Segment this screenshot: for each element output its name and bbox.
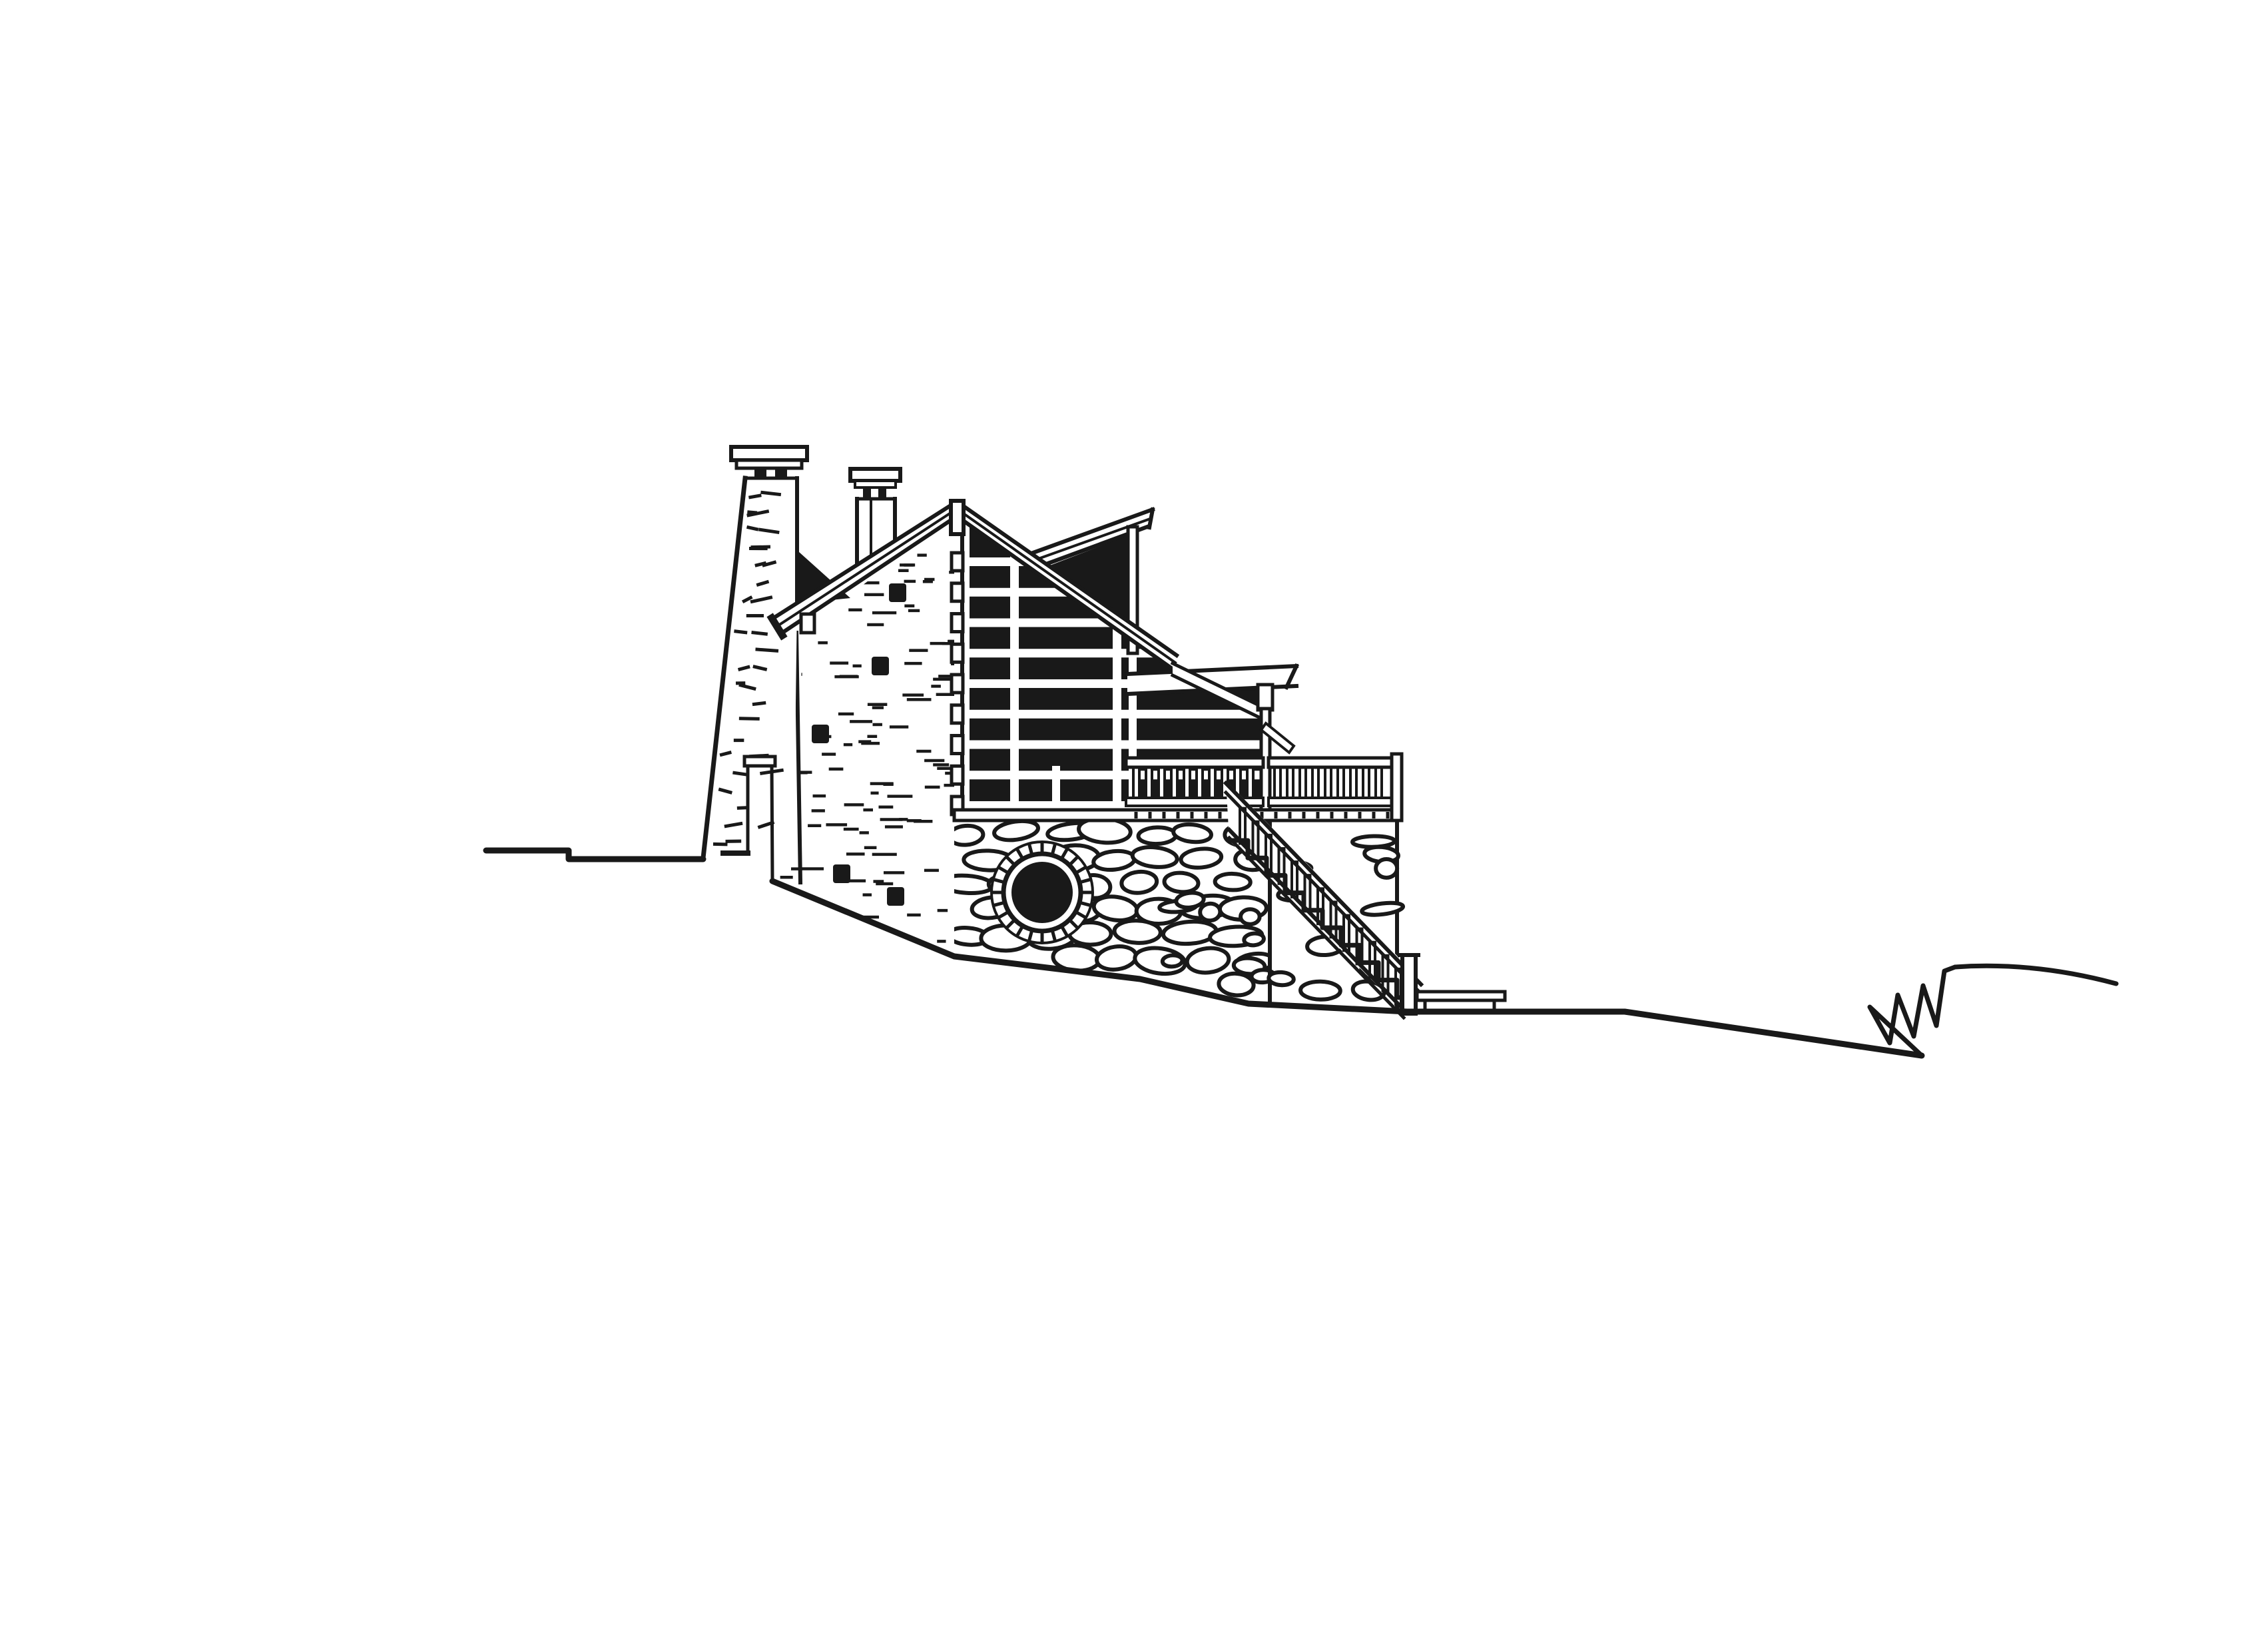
ground-line-left: [486, 850, 703, 859]
top-rail-left: [1126, 758, 1263, 767]
foundation-stones: [940, 817, 1275, 996]
ridge-end-block: [951, 501, 964, 534]
elevation-drawing: [0, 0, 2268, 1647]
post-top-bracket: [1258, 685, 1273, 710]
ground-line-right: [1955, 966, 2116, 984]
drawing-page: [0, 0, 2268, 1647]
chimney-cap-lip: [736, 460, 802, 468]
round-cellar-window: [992, 842, 1093, 943]
bottom-rail-right: [1269, 798, 1402, 806]
small-chimney-cap-lip: [855, 481, 896, 488]
stair-newel-post: [1402, 955, 1416, 1014]
main-chimney: [703, 447, 807, 881]
railing-end-post: [1392, 754, 1402, 821]
small-chimney-cap-slab: [850, 469, 900, 481]
landing-board: [1417, 992, 1505, 1000]
purlin-end-block: [801, 614, 814, 633]
top-rail-right: [1269, 758, 1402, 767]
chimney-cap-slab: [731, 447, 807, 460]
small-flue-right: [878, 488, 886, 499]
flue-vent-right: [775, 468, 787, 479]
flue-vent-left: [754, 468, 766, 479]
log-ends: [952, 553, 963, 815]
grass-tuft: [1870, 967, 1955, 1056]
small-flue-left: [863, 488, 871, 499]
sill-band: [954, 810, 1402, 821]
